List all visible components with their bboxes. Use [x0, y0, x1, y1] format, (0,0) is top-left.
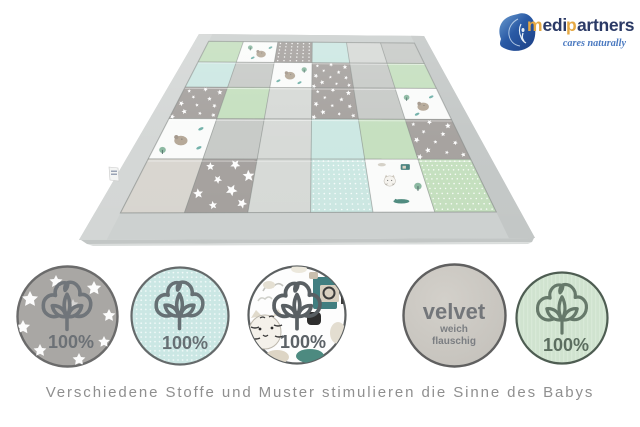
svg-text:cares naturally: cares naturally — [563, 38, 627, 49]
svg-text:velvet: velvet — [423, 299, 486, 324]
svg-text:100%: 100% — [162, 333, 208, 353]
svg-text:p: p — [566, 15, 576, 35]
svg-text:flauschig: flauschig — [432, 336, 476, 347]
svg-text:weich: weich — [439, 324, 468, 335]
svg-text:100%: 100% — [280, 332, 326, 352]
svg-text:100%: 100% — [543, 335, 589, 355]
svg-text:artners: artners — [577, 15, 635, 35]
svg-text:100%: 100% — [48, 332, 94, 352]
svg-text:m: m — [527, 15, 542, 35]
svg-text:edi: edi — [543, 15, 567, 35]
